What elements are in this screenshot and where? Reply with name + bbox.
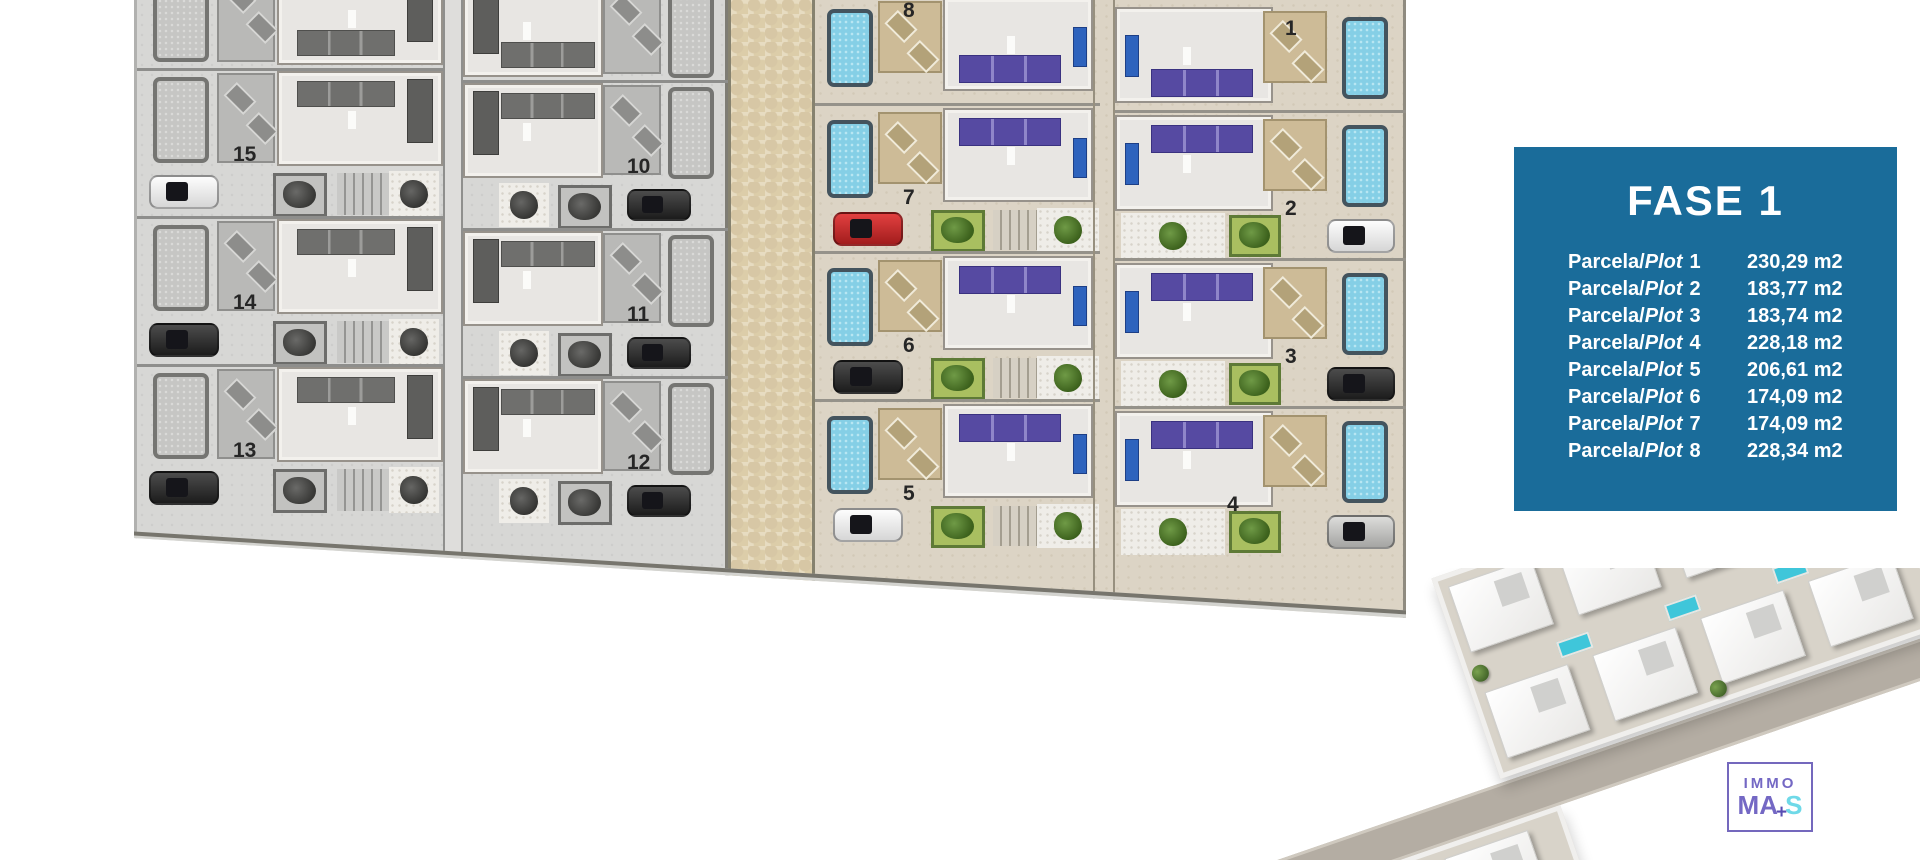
plot-label: 8 (903, 0, 915, 23)
pool (827, 268, 873, 346)
terrace (1263, 415, 1327, 487)
pool (1342, 273, 1388, 355)
legend-row: Parcela/Plot3 183,74 m2 (1568, 303, 1897, 330)
gravel-tree (1037, 504, 1099, 548)
legend-row: Parcela/Plot8 228,34 m2 (1568, 438, 1897, 465)
car (1327, 515, 1395, 549)
terrace (878, 112, 942, 184)
legend-row: Parcela/Plot2 183,77 m2 (1568, 276, 1897, 303)
house (1115, 263, 1273, 359)
plot-13: 13 (137, 364, 443, 512)
car (627, 337, 691, 369)
plot-label: 13 (233, 439, 256, 463)
pool (668, 0, 714, 78)
car (833, 360, 903, 394)
garden-planter (1229, 363, 1281, 405)
plot-label: 10 (627, 155, 650, 179)
plot-label: 6 (903, 334, 915, 358)
gravel-tree (389, 171, 439, 217)
pool (153, 77, 209, 163)
villa-3d (1700, 590, 1806, 685)
pool (668, 383, 714, 475)
villa-3d (1556, 568, 1662, 616)
site-plan: 15 14 (134, 0, 1406, 622)
plus-icon: + (1776, 800, 1787, 826)
plot-area-value: 206,61 m2 (1747, 357, 1897, 384)
gravel-tree (389, 467, 439, 513)
house (943, 404, 1093, 498)
gravel-tree (1121, 213, 1225, 259)
car (149, 323, 219, 357)
plot-label: 3 (1285, 345, 1297, 369)
house (463, 83, 603, 178)
car (149, 175, 219, 209)
pool (153, 373, 209, 459)
house (463, 231, 603, 326)
car (1327, 219, 1395, 253)
phase2-section: 15 14 (134, 0, 728, 622)
plot-label: 7 (903, 186, 915, 210)
plot-14: 14 (137, 216, 443, 364)
villa-3d (1448, 568, 1554, 653)
car (1327, 367, 1395, 401)
pool (668, 235, 714, 327)
garden-planter (931, 358, 985, 400)
legend-rows: Parcela/Plot1 230,29 m2 Parcela/Plot2 18… (1514, 249, 1897, 465)
plot-boundary-wall (1093, 0, 1115, 622)
tree-planter (273, 321, 327, 365)
flyer-page: 15 14 (0, 0, 1920, 860)
pedestrian-alley (443, 0, 463, 622)
house (463, 0, 603, 77)
plot-11: 11 (463, 228, 731, 376)
pool (827, 120, 873, 198)
villa-3d (1664, 568, 1770, 579)
phase2-right-column: 10 11 12 (463, 0, 731, 622)
house (943, 0, 1093, 91)
tree-planter (558, 333, 612, 377)
gravel-tree (1121, 361, 1225, 407)
gravel-tree (389, 319, 439, 365)
gravel-tree (1037, 208, 1099, 252)
plot-7-unit: 7 (815, 103, 1100, 251)
garden-planter (931, 210, 985, 252)
villa-3d (1484, 664, 1590, 759)
house (1115, 411, 1273, 507)
gravel-tree (499, 331, 549, 375)
terrace (878, 260, 942, 332)
plot-label: 14 (233, 291, 256, 315)
logo-line2: MA+S (1738, 792, 1803, 818)
pool (1342, 17, 1388, 99)
plot-label: 12 (627, 451, 650, 475)
legend-row: Parcela/Plot1 230,29 m2 (1568, 249, 1897, 276)
gravel-tree (1121, 509, 1225, 555)
house (277, 367, 443, 462)
pool-3d (1556, 631, 1594, 658)
plot-12: 12 (463, 376, 731, 524)
terrace (1263, 267, 1327, 339)
plot-area-value: 174,09 m2 (1747, 411, 1897, 438)
gravel-tree (499, 183, 549, 227)
gravel-tree (499, 479, 549, 523)
car (627, 485, 691, 517)
car (833, 508, 903, 542)
villa-3d (1592, 627, 1698, 722)
garden-planter (1229, 215, 1281, 257)
plot-label: 15 (233, 143, 256, 167)
gravel-tree (1037, 356, 1099, 400)
legend-row: Parcela/Plot6 174,09 m2 (1568, 384, 1897, 411)
tree-planter (558, 185, 612, 229)
villa-3d (1808, 568, 1914, 647)
pool (153, 0, 209, 62)
tree-planter (273, 469, 327, 513)
phase-legend-panel: FASE 1 Parcela/Plot1 230,29 m2 Parcela/P… (1514, 147, 1897, 511)
house (277, 71, 443, 166)
plot-10: 10 (463, 80, 731, 228)
terrace (1263, 119, 1327, 191)
terrace (603, 0, 661, 74)
plot-label: 1 (1285, 17, 1297, 41)
plot-2-unit: 2 (1115, 110, 1406, 258)
legend-title: FASE 1 (1514, 177, 1897, 225)
pool (668, 87, 714, 179)
car (627, 189, 691, 221)
tree-planter (273, 173, 327, 217)
house (943, 108, 1093, 202)
house (277, 0, 443, 65)
house (1115, 7, 1273, 103)
tree-3d (1470, 662, 1492, 684)
phase1-section: 8 7 6 (815, 0, 1406, 622)
pool (153, 225, 209, 311)
car (833, 212, 903, 246)
plot-label: 5 (903, 482, 915, 506)
phase1-left-column: 8 7 6 (815, 0, 1100, 622)
garden-planter (1229, 511, 1281, 553)
immomas-logo: IMMO MA+S (1727, 762, 1813, 832)
plot-area-value: 183,74 m2 (1747, 303, 1897, 330)
house (277, 219, 443, 314)
cobbled-road (728, 0, 815, 622)
plot-area-value: 183,77 m2 (1747, 276, 1897, 303)
phase2-left-column: 15 14 (137, 0, 443, 622)
garden-planter (931, 506, 985, 548)
plot-label: 11 (627, 303, 649, 327)
plot-15: 15 (137, 68, 443, 216)
plot-3-unit: 3 (1115, 258, 1406, 406)
pool (827, 416, 873, 494)
pool (827, 9, 873, 87)
terrace (878, 408, 942, 480)
plot-label: 2 (1285, 197, 1297, 221)
terrace (217, 0, 275, 62)
phase1-right-column: 1 2 3 (1115, 0, 1406, 622)
pool-3d (1664, 594, 1702, 621)
legend-row: Parcela/Plot4 228,18 m2 (1568, 330, 1897, 357)
plot-area-value: 228,18 m2 (1747, 330, 1897, 357)
house (1115, 115, 1273, 211)
legend-row: Parcela/Plot7 174,09 m2 (1568, 411, 1897, 438)
car (149, 471, 219, 505)
plot-6-unit: 6 (815, 251, 1100, 399)
plot-4-unit: 4 (1115, 406, 1406, 554)
plot-area-value: 230,29 m2 (1747, 249, 1897, 276)
tree-planter (558, 481, 612, 525)
house (463, 379, 603, 474)
house (943, 256, 1093, 350)
pool (1342, 125, 1388, 207)
pool (1342, 421, 1388, 503)
plot-5-unit: 5 (815, 399, 1100, 547)
pool-3d (1772, 568, 1810, 584)
legend-row: Parcela/Plot5 206,61 m2 (1568, 357, 1897, 384)
plot-area-value: 228,34 m2 (1747, 438, 1897, 465)
plot-area-value: 174,09 m2 (1747, 384, 1897, 411)
